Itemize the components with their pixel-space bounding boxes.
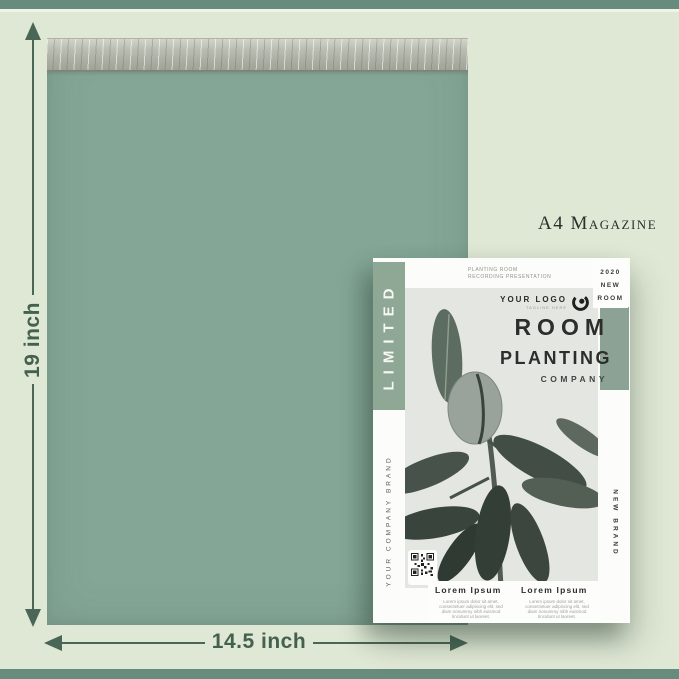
issue-box: 2020 NEW ROOM [593,258,628,308]
frame-bar-top [0,0,679,9]
brand-logo: YOUR LOGO TAGLINE HERE [500,293,590,312]
logo-tagline: TAGLINE HERE [500,305,567,310]
logo-text: YOUR LOGO [500,295,567,304]
article-body: Lorem ipsum dolor sit amet, consectetuer… [435,599,507,619]
article-heading: Lorem Ipsum [521,585,593,595]
product-image: 19 inch 14.5 inch A4 Magazine PLANTING R… [0,0,679,679]
size-caption: A4 Magazine [538,213,657,235]
qr-code [408,550,437,585]
qr-code-icon [411,553,434,576]
cover-title-company: COMPANY [541,374,608,384]
article-teaser: Lorem Ipsum Lorem ipsum dolor sit amet, … [514,581,600,623]
dimension-line [59,642,205,644]
adhesive-seal-strip [47,38,468,72]
cover-title-room: ROOM [514,314,610,341]
logo-mark-icon [571,293,590,312]
right-vertical-label: NEW BRAND [600,448,629,598]
magazine-header-text: PLANTING ROOM RECORDING PRESENTATION [468,267,551,281]
height-dimension-arrow: 19 inch [22,22,44,627]
header-line-1: PLANTING ROOM [468,267,551,274]
limited-label: LIMITED [381,282,398,391]
height-dimension-label: 19 inch [21,302,45,378]
magazine-cover: PLANTING ROOM RECORDING PRESENTATION 202… [373,258,630,623]
frame-bar-bottom [0,669,679,679]
frame-bar-highlight [0,9,679,12]
issue-word-new: NEW [593,279,628,292]
limited-banner: LIMITED [373,262,405,410]
arrow-up-icon [25,22,41,40]
dimension-line [313,642,451,644]
issue-word-room: ROOM [593,292,628,305]
article-teaser-panel: Lorem Ipsum Lorem ipsum dolor sit amet, … [428,581,600,623]
dimension-line [32,39,34,295]
article-teaser: Lorem Ipsum Lorem ipsum dolor sit amet, … [428,581,514,623]
article-heading: Lorem Ipsum [435,585,507,595]
dimension-line [32,384,34,609]
cover-title-planting: PLANTING [500,348,612,369]
arrow-right-icon [450,635,468,651]
header-line-2: RECORDING PRESENTATION [468,274,551,281]
left-vertical-label: YOUR COMPANY BRAND [373,438,405,603]
width-dimension-arrow: 14.5 inch [44,630,468,656]
width-dimension-label: 14.5 inch [199,630,319,654]
arrow-down-icon [25,609,41,627]
article-body: Lorem ipsum dolor sit amet, consectetuer… [521,599,593,619]
issue-year: 2020 [593,266,628,279]
